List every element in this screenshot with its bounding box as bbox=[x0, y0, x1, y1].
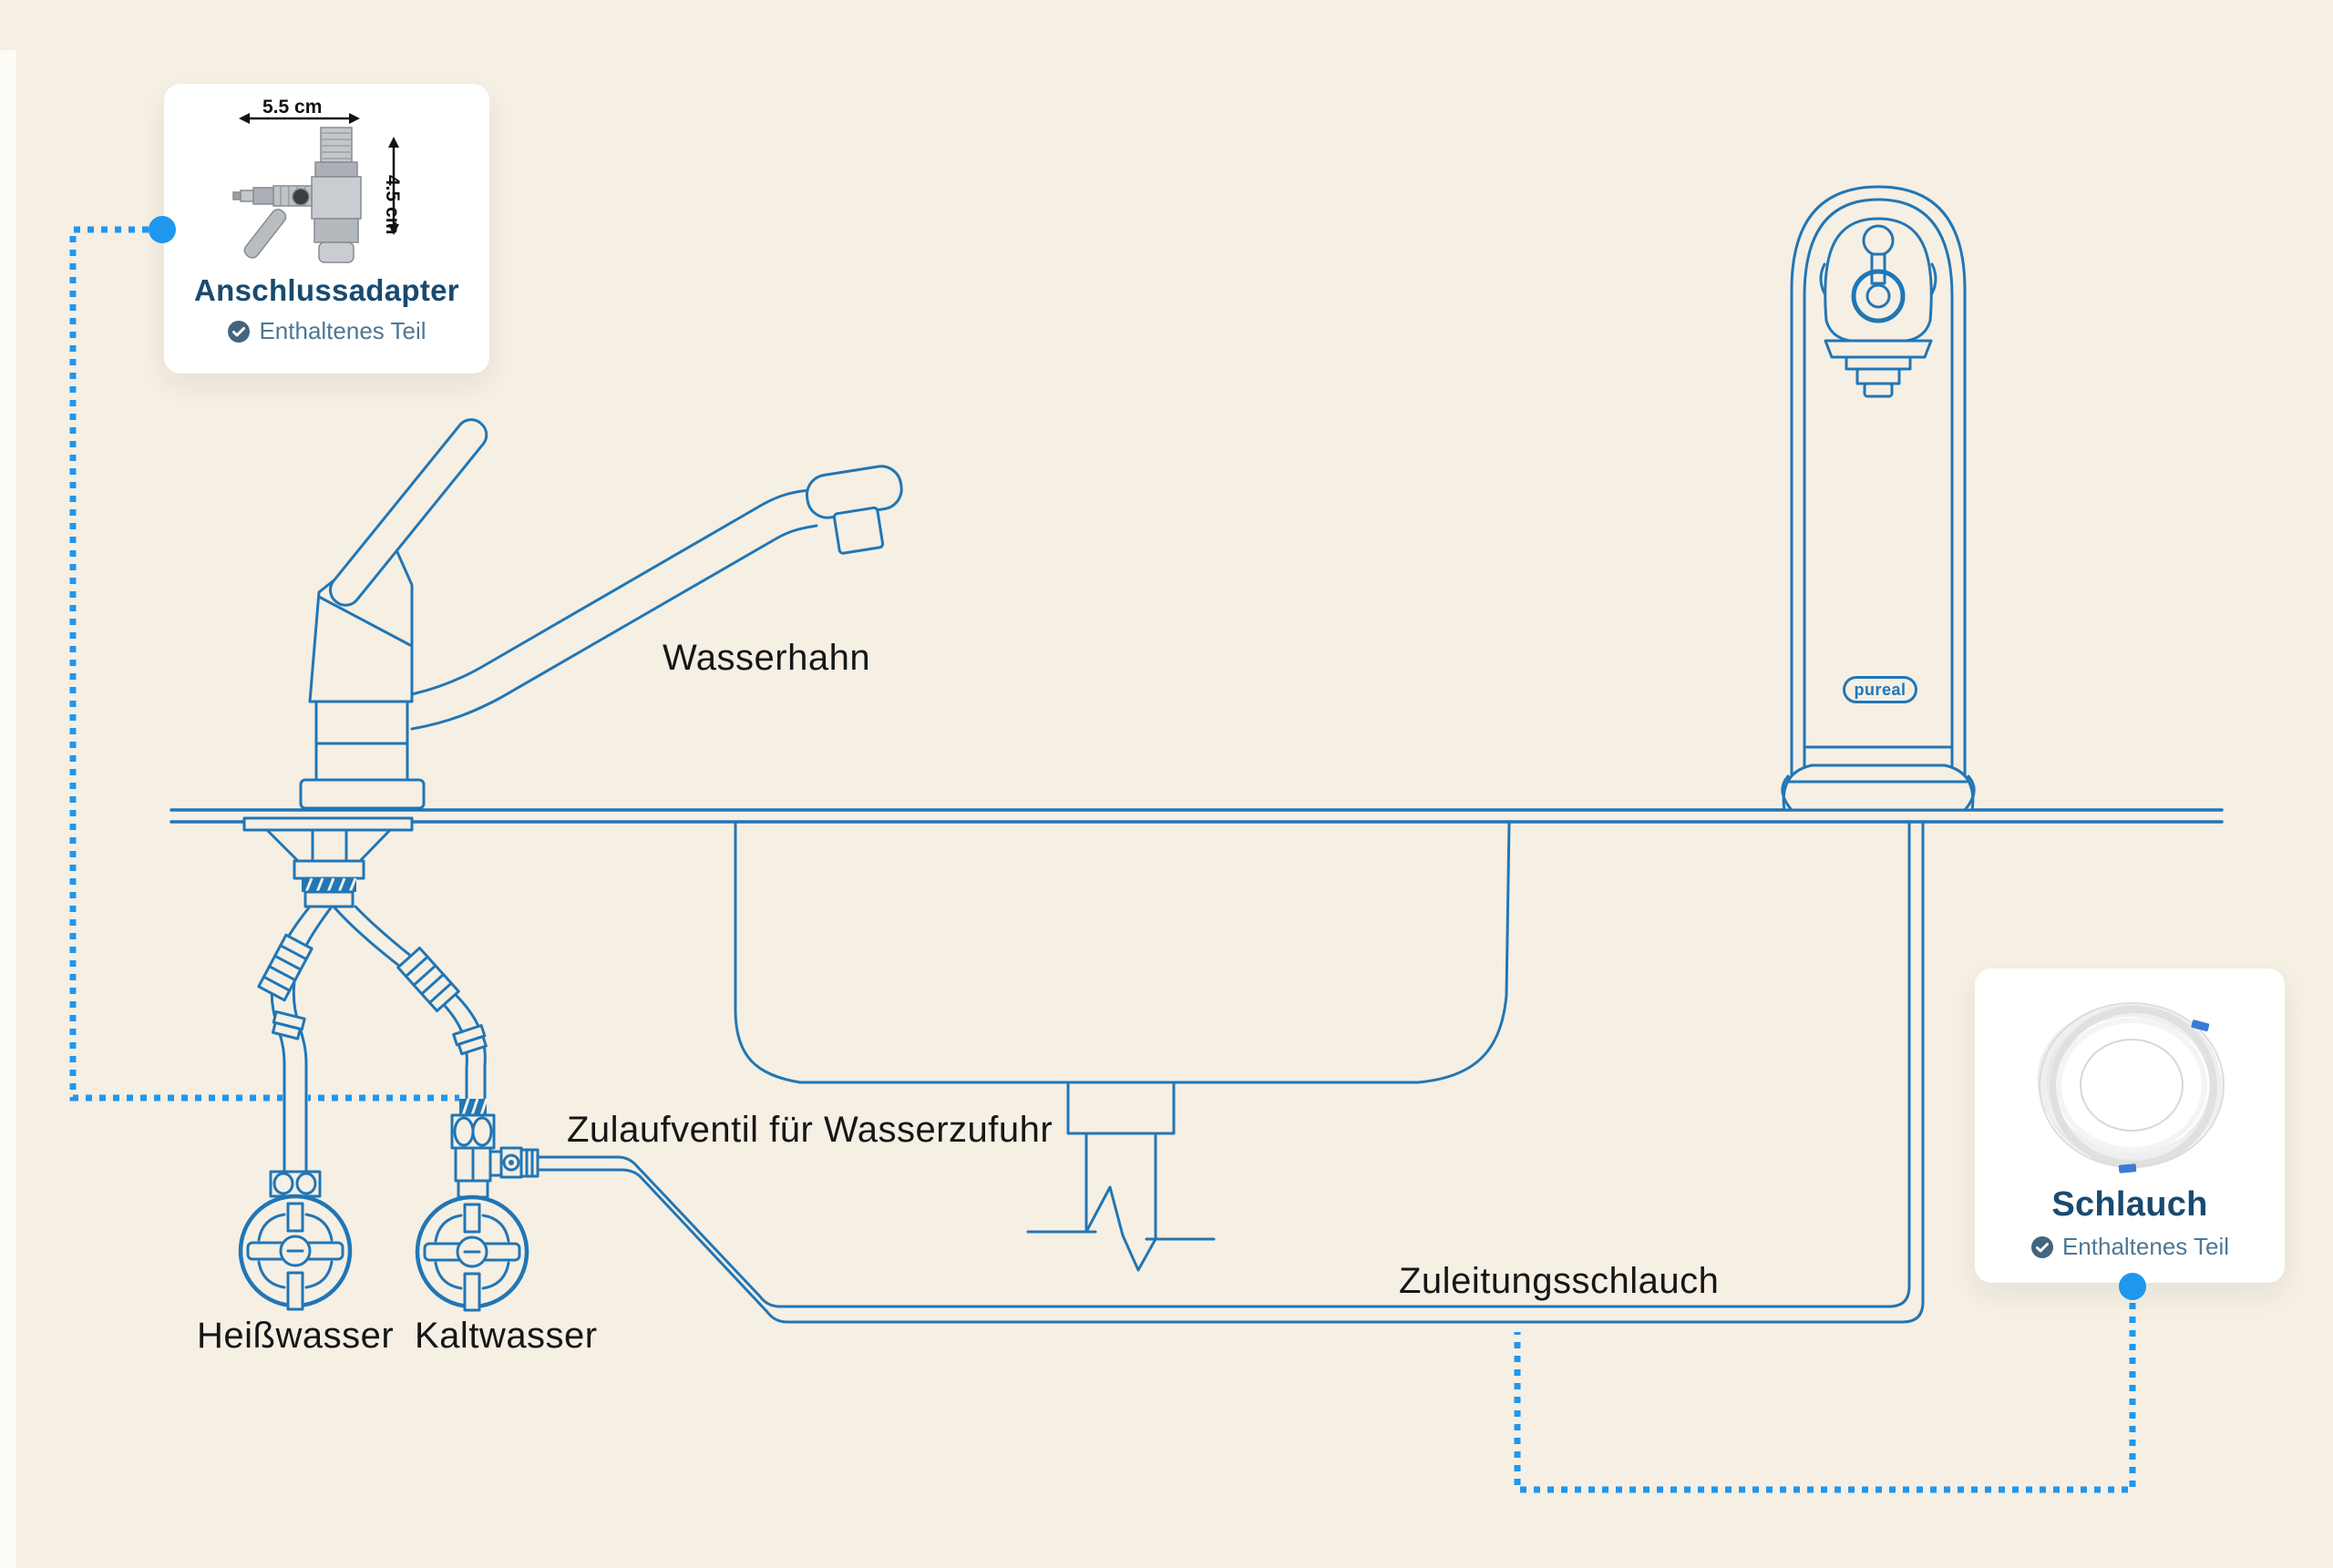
inlet-valve bbox=[452, 1099, 538, 1197]
installation-diagram: Wasserhahn Zulaufventil für Wasserzufuhr… bbox=[0, 0, 2333, 1568]
hot-water-valve bbox=[241, 1172, 350, 1309]
pipe-break-icon bbox=[1086, 1187, 1156, 1270]
adapter-product bbox=[233, 128, 361, 262]
adapter-card-title: Anschlussadapter bbox=[164, 273, 489, 308]
adapter-width-dim-label: 5.5 cm bbox=[262, 97, 322, 118]
hose-card-badge: Enthaltenes Teil bbox=[1975, 1233, 2285, 1261]
check-circle-icon bbox=[227, 320, 251, 343]
hot-water-hose bbox=[259, 907, 332, 1175]
sink-basin bbox=[735, 823, 1509, 1082]
supply-hose-label: Zuleitungsschlauch bbox=[1399, 1261, 1719, 1302]
adapter-card: 5.5 cm 4.5 cm Anschlussadapter Enthalten… bbox=[164, 84, 489, 374]
supply-hose-tube bbox=[537, 823, 1923, 1322]
purifier-base bbox=[1783, 765, 1973, 810]
cold-water-hose bbox=[334, 907, 488, 1102]
countertop bbox=[171, 810, 2222, 822]
hose-clip-icon bbox=[2119, 1163, 2137, 1173]
adapter-connector-dot bbox=[149, 216, 176, 243]
faucet-mounting bbox=[244, 818, 412, 907]
adapter-card-badge: Enthaltenes Teil bbox=[164, 317, 489, 345]
hose-card-title: Schlauch bbox=[1975, 1185, 2285, 1225]
adapter-height-dim-label: 4.5 cm bbox=[381, 175, 403, 234]
faucet-label: Wasserhahn bbox=[663, 638, 870, 679]
adapter-badge-label: Enthaltenes Teil bbox=[259, 317, 426, 345]
hot-water-label: Heißwasser bbox=[197, 1316, 394, 1357]
hose-card: Schlauch Enthaltenes Teil bbox=[1975, 968, 2285, 1283]
hose-badge-label: Enthaltenes Teil bbox=[2062, 1233, 2229, 1261]
hose-connector-dot bbox=[2119, 1273, 2146, 1300]
hose-connector-dotted-line bbox=[1517, 1303, 2133, 1490]
water-purifier bbox=[1783, 187, 1974, 810]
pureal-logo: pureal bbox=[1843, 676, 1917, 703]
check-circle-icon bbox=[2030, 1235, 2054, 1259]
hose-product-image bbox=[1975, 968, 2285, 1183]
drain-pipe bbox=[1028, 1082, 1214, 1270]
faucet bbox=[301, 414, 910, 808]
inlet-valve-label: Zulaufventil für Wasserzufuhr bbox=[567, 1110, 1053, 1151]
faucet-spout-head bbox=[804, 464, 910, 558]
cold-water-valve bbox=[417, 1197, 527, 1310]
cold-water-label: Kaltwasser bbox=[415, 1316, 598, 1357]
